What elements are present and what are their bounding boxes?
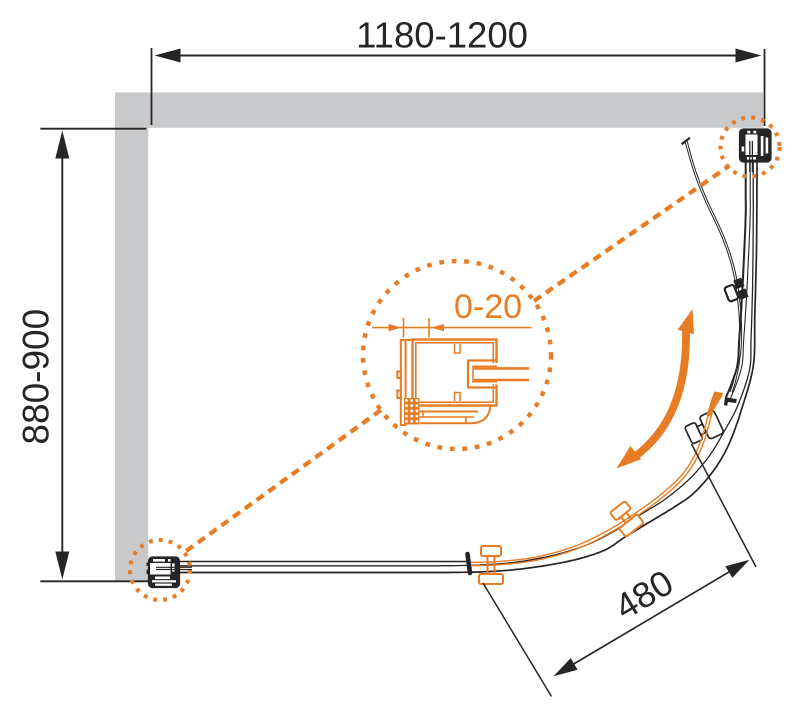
- svg-text:880-900: 880-900: [16, 309, 57, 445]
- svg-text:0-20: 0-20: [454, 288, 522, 326]
- svg-text:1180-1200: 1180-1200: [356, 15, 528, 56]
